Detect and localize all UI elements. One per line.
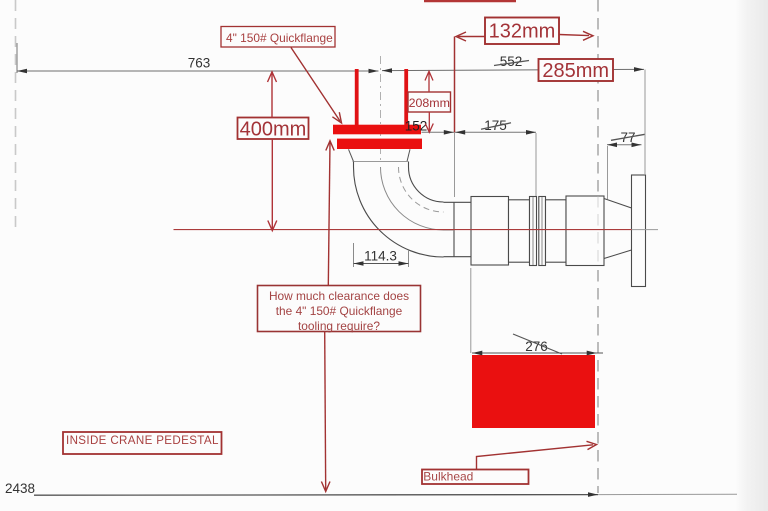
svg-text:132mm: 132mm bbox=[489, 21, 556, 43]
svg-text:INSIDE CRANE PEDESTAL: INSIDE CRANE PEDESTAL bbox=[66, 434, 219, 447]
svg-text:4" 150# Quickflange: 4" 150# Quickflange bbox=[226, 31, 333, 45]
svg-text:114.3: 114.3 bbox=[364, 249, 397, 264]
svg-text:Bulkhead: Bulkhead bbox=[423, 470, 473, 484]
svg-text:763: 763 bbox=[188, 56, 211, 71]
svg-text:285mm: 285mm bbox=[542, 60, 609, 82]
svg-text:208mm: 208mm bbox=[409, 96, 450, 110]
svg-text:tooling require?: tooling require? bbox=[298, 319, 380, 333]
svg-text:How much clearance does: How much clearance does bbox=[269, 289, 409, 303]
svg-text:the 4" 150# Quickflange: the 4" 150# Quickflange bbox=[276, 304, 403, 318]
svg-text:2438: 2438 bbox=[5, 481, 35, 496]
svg-text:152: 152 bbox=[405, 118, 428, 133]
svg-text:400mm: 400mm bbox=[240, 119, 307, 141]
svg-text:175: 175 bbox=[484, 118, 507, 133]
